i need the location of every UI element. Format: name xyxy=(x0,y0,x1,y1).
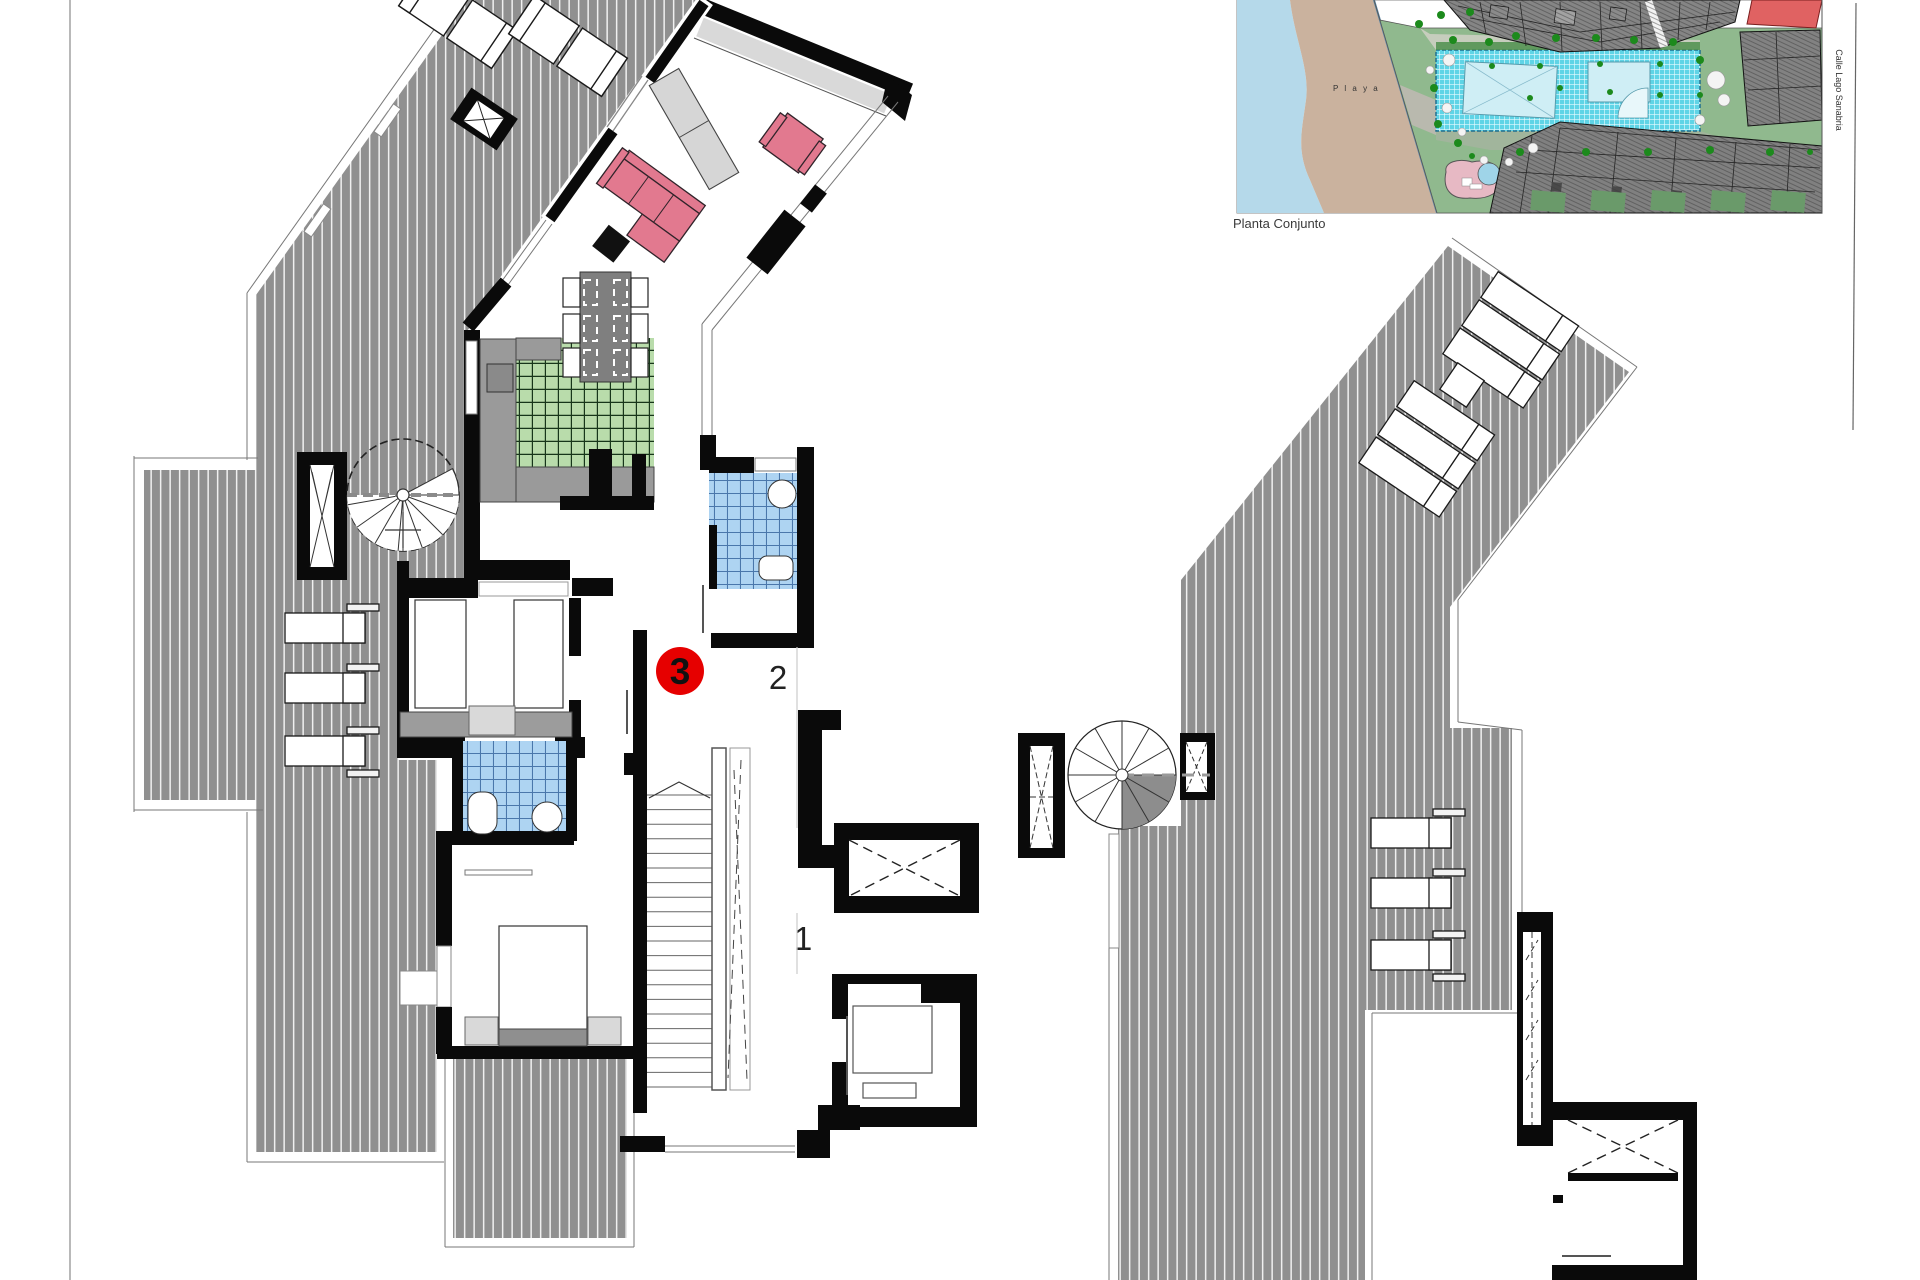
svg-text:2: 2 xyxy=(769,659,787,696)
svg-text:3: 3 xyxy=(670,651,691,692)
svg-text:Planta Conjunto: Planta Conjunto xyxy=(1233,216,1326,231)
svg-text:Calle Lago Sanabria: Calle Lago Sanabria xyxy=(1834,49,1844,131)
svg-text:P l a y a: P l a y a xyxy=(1333,84,1380,93)
